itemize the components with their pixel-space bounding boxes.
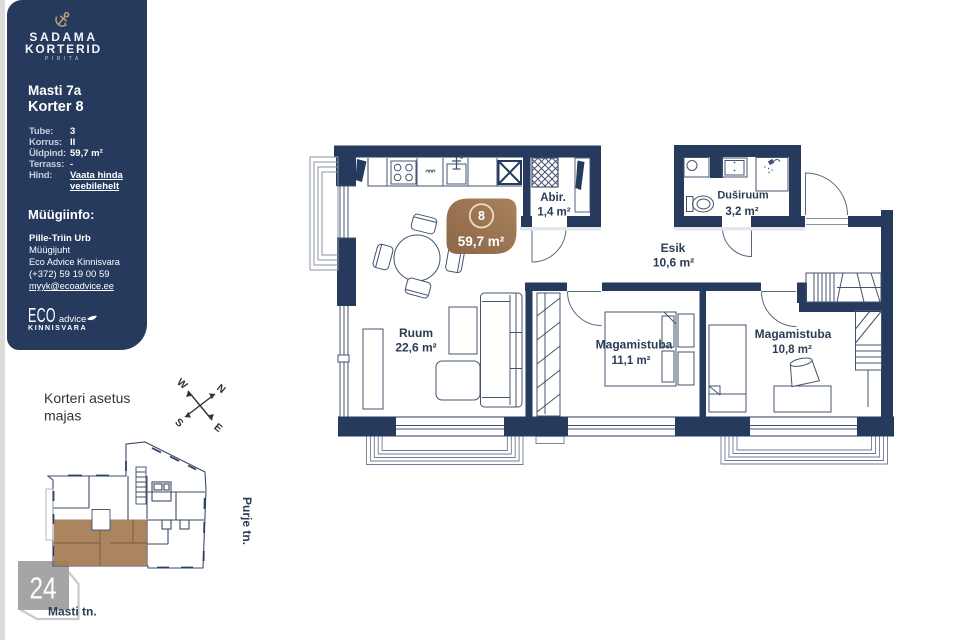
svg-text:1,4 m²: 1,4 m² bbox=[537, 207, 570, 219]
svg-text:10,6 m²: 10,6 m² bbox=[653, 256, 694, 270]
svg-text:W: W bbox=[174, 376, 189, 392]
svg-text:E: E bbox=[211, 421, 224, 435]
svg-text:Purje tn.: Purje tn. bbox=[240, 497, 254, 545]
svg-text:majas: majas bbox=[44, 408, 81, 424]
svg-text:Abir.: Abir. bbox=[540, 192, 566, 204]
svg-text:Ruum: Ruum bbox=[399, 326, 433, 340]
svg-text:8: 8 bbox=[478, 209, 485, 223]
svg-text:59,7 m²: 59,7 m² bbox=[458, 234, 505, 249]
svg-text:Esik: Esik bbox=[661, 241, 686, 255]
svg-text:Magamistuba: Magamistuba bbox=[596, 338, 673, 352]
svg-text:N: N bbox=[214, 382, 228, 396]
svg-text:10,8 m²: 10,8 m² bbox=[772, 344, 812, 356]
svg-text:Korteri asetus: Korteri asetus bbox=[44, 390, 130, 406]
svg-text:11,1 m²: 11,1 m² bbox=[612, 355, 651, 367]
svg-text:Masti tn.: Masti tn. bbox=[48, 605, 97, 619]
svg-text:3,2 m²: 3,2 m² bbox=[725, 206, 758, 218]
svg-text:24: 24 bbox=[30, 571, 57, 606]
svg-text:Magamistuba: Magamistuba bbox=[755, 327, 832, 341]
svg-text:22,6 m²: 22,6 m² bbox=[395, 341, 436, 355]
svg-text:Duširuum: Duširuum bbox=[717, 190, 769, 202]
svg-text:S: S bbox=[172, 416, 185, 430]
